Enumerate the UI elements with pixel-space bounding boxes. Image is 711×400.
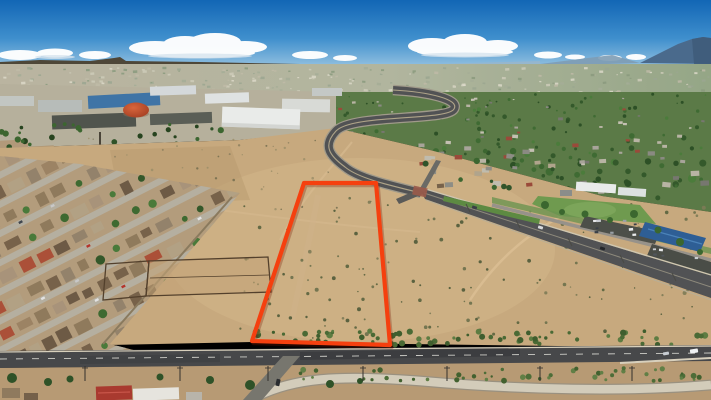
scatter-dot [538, 102, 540, 104]
scatter-dot [579, 123, 582, 126]
scatter-rect [618, 121, 623, 124]
scatter-dot [275, 149, 277, 151]
scatter-rect [455, 155, 462, 159]
scatter-dot [416, 342, 422, 348]
scatter-dot [548, 159, 551, 162]
scatter-dot [680, 376, 683, 379]
scatter-dot [574, 147, 577, 150]
scatter-dot [284, 147, 286, 149]
aerial-photo-stage: Aerial drone photograph of a vacant dese… [0, 0, 711, 400]
scatter-dot [371, 333, 376, 338]
scatter-dot [623, 114, 627, 118]
scatter-dot [439, 238, 443, 242]
scatter-dot [357, 291, 358, 292]
scatter-dot [622, 366, 626, 370]
scatter-dot [418, 298, 422, 302]
scatter-rect [635, 150, 640, 153]
scatter-rect [506, 137, 512, 141]
scatter-dot [456, 337, 461, 342]
scatter-dot [693, 211, 696, 214]
scatter-dot [414, 240, 418, 244]
scatter-rect [546, 106, 549, 108]
scatter-dot [610, 148, 614, 152]
scatter-dot [596, 176, 602, 182]
scatter-dot [362, 268, 364, 270]
scatter-dot [343, 114, 346, 117]
scatter-dot [538, 336, 541, 339]
scatter-dot [629, 133, 635, 139]
scatter-dot [497, 138, 500, 141]
scatter-dot [665, 211, 669, 215]
scatter-dot [592, 375, 597, 380]
scatter-dot [429, 313, 431, 315]
scatter-dot [76, 125, 82, 131]
scatter-dot [152, 132, 157, 137]
scatter-rect [661, 255, 664, 257]
scatter-dot [454, 377, 459, 382]
scatter-rect [479, 159, 486, 163]
scatter-rect [659, 249, 663, 252]
scatter-dot [348, 197, 351, 200]
scatter-dot [501, 184, 507, 190]
scatter-dot [475, 102, 477, 104]
scatter-dot [464, 301, 466, 303]
scatter-dot [407, 329, 413, 335]
scatter-dot [361, 298, 364, 301]
scatter-dot [483, 149, 488, 154]
scatter-dot [401, 301, 403, 303]
scatter-dot [302, 378, 305, 381]
scatter-dot [274, 208, 276, 210]
scatter-dot [261, 188, 263, 190]
scatter-rect [689, 127, 692, 129]
scatter-dot [346, 319, 350, 323]
scatter-dot [676, 94, 679, 97]
scatter-dot [437, 326, 439, 328]
scatter-dot [272, 331, 275, 334]
scatter-dot [479, 260, 482, 263]
scatter-rect [701, 120, 704, 122]
scatter-dot [589, 152, 591, 154]
scatter-dot [387, 204, 389, 206]
scatter-dot [661, 294, 663, 296]
scatter-dot [589, 296, 591, 298]
scatter-rect [662, 182, 671, 188]
scatter-rect [632, 233, 636, 236]
scatter-dot [232, 179, 235, 182]
scatter-dot [21, 139, 25, 143]
scatter-dot [469, 302, 472, 305]
scatter-dot [442, 146, 447, 151]
house [2, 388, 20, 398]
scatter-rect [638, 115, 641, 117]
scatter-dot [312, 337, 314, 339]
scatter-dot [660, 366, 665, 371]
scatter-rect [480, 131, 484, 133]
scatter-rect [585, 161, 590, 164]
scatter-dot [358, 330, 362, 334]
scatter-dot [624, 179, 629, 184]
scatter-dot [460, 220, 464, 224]
scatter-dot [126, 154, 127, 155]
scatter-rect [391, 111, 393, 112]
scatter-rect [634, 138, 640, 142]
scatter-dot [491, 375, 493, 377]
scatter-dot [342, 317, 345, 320]
scatter-dot [195, 137, 199, 141]
scatter-dot [182, 167, 184, 169]
scatter-dot [324, 325, 326, 327]
scatter-rect [626, 139, 630, 142]
scatter-dot [364, 274, 366, 276]
scatter-dot [456, 372, 461, 377]
scatter-dot [52, 123, 56, 127]
scatter-dot [556, 176, 559, 179]
scatter-dot [520, 374, 526, 380]
scatter-dot [501, 378, 507, 384]
scatter-dot [465, 217, 467, 219]
scatter-dot [476, 138, 481, 143]
scatter-dot [568, 331, 571, 334]
scatter-dot [176, 145, 178, 147]
scatter-dot [498, 146, 501, 149]
scatter-dot [377, 367, 382, 372]
scatter-dot [263, 186, 264, 187]
scatter-dot [277, 173, 278, 174]
scatter-dot [218, 127, 224, 133]
scatter-dot [337, 255, 339, 257]
scatter-dot [349, 96, 350, 97]
scatter-dot [566, 119, 570, 123]
scatter-dot [426, 378, 430, 382]
scatter-dot [371, 285, 374, 288]
scatter-dot [215, 177, 217, 179]
scatter-dot [613, 160, 619, 166]
scatter-dot [614, 369, 618, 373]
warehouse [0, 96, 34, 106]
scatter-dot [506, 185, 512, 191]
scatter-rect [437, 183, 444, 188]
scatter-dot [412, 280, 415, 283]
scatter-dot [308, 250, 312, 254]
scatter-dot [681, 372, 683, 374]
scatter-rect [512, 135, 518, 139]
scatter-dot [151, 169, 154, 172]
scatter-dot [399, 340, 405, 346]
scatter-dot [336, 207, 338, 209]
scatter-rect [677, 135, 682, 138]
scatter-dot [619, 106, 623, 110]
scatter-rect [592, 146, 598, 150]
scatter-dot [590, 96, 593, 99]
scatter-dot [475, 114, 478, 117]
scatter-dot [273, 146, 274, 147]
scatter-dot [620, 335, 625, 340]
scatter-dot [536, 282, 538, 284]
scatter-dot [569, 156, 573, 160]
scatter-dot [659, 163, 664, 168]
scatter-dot [412, 378, 415, 381]
scatter-dot [307, 279, 309, 281]
scatter-dot [328, 298, 331, 301]
scatter-rect [660, 157, 664, 160]
scatter-dot [415, 238, 417, 240]
scatter-dot [527, 259, 531, 263]
scatter-dot [705, 94, 707, 96]
scatter-dot [477, 127, 481, 131]
scatter-dot [651, 93, 654, 96]
scatter-rect [622, 98, 624, 99]
scatter-dot [433, 218, 436, 221]
scatter-dot [503, 336, 507, 340]
scatter-dot [645, 158, 651, 164]
scatter-dot [375, 129, 379, 133]
scatter-rect [526, 182, 533, 186]
scatter-dot [610, 373, 614, 377]
scatter-dot [510, 124, 513, 127]
scatter-dot [476, 121, 480, 125]
scatter-dot [242, 154, 243, 155]
scatter-dot [239, 328, 241, 330]
scatter-dot [517, 321, 520, 324]
scatter-dot [654, 368, 657, 371]
scatter-dot [384, 376, 388, 380]
scatter-dot [526, 374, 532, 380]
scatter-dot [359, 335, 365, 341]
scatter-dot [370, 378, 373, 381]
scatter-dot [690, 146, 694, 150]
scatter-dot [338, 217, 340, 219]
scatter-rect [474, 171, 482, 176]
scatter-dot [445, 341, 450, 346]
scatter-dot [593, 115, 596, 118]
scatter-dot [673, 161, 678, 166]
scatter-dot [479, 334, 485, 340]
scatter-dot [426, 336, 430, 340]
scatter-dot [492, 185, 497, 190]
scatter-dot [428, 340, 434, 346]
scatter-dot [580, 100, 583, 103]
scatter-dot [625, 169, 631, 175]
scatter-dot [490, 180, 493, 183]
scatter-dot [331, 330, 334, 333]
scatter-dot [456, 224, 460, 228]
scatter-dot [388, 261, 390, 263]
scatter-dot [486, 268, 489, 271]
scatter-dot [489, 237, 492, 240]
scatter-dot [484, 372, 487, 375]
scatter-dot [679, 153, 682, 156]
scatter-dot [243, 205, 245, 207]
scatter-dot [551, 153, 556, 158]
scatter-dot [640, 336, 643, 339]
scatter-dot [654, 336, 659, 341]
scatter-dot [289, 316, 292, 319]
scatter-dot [665, 116, 668, 119]
scatter-rect [700, 180, 709, 185]
scatter-dot [332, 276, 336, 280]
scatter-dot [376, 283, 378, 285]
scatter-rect [464, 146, 471, 150]
scatter-dot [662, 134, 665, 137]
scatter-dot [534, 93, 537, 96]
scatter-dot [346, 265, 350, 269]
scatter-dot [323, 318, 326, 321]
scatter-dot [399, 379, 402, 382]
scatter-rect [648, 151, 655, 155]
scatter-dot [563, 283, 567, 287]
scatter-dot [539, 279, 541, 281]
scatter-dot [229, 153, 231, 155]
warehouse [38, 100, 82, 112]
scatter-dot [629, 145, 635, 151]
scatter-dot [532, 167, 537, 172]
scatter-dot [532, 140, 535, 143]
small-building [186, 392, 202, 400]
scatter-dot [700, 147, 703, 150]
scatter-dot [661, 313, 663, 315]
scatter-dot [592, 153, 597, 158]
scatter-dot [458, 177, 463, 182]
scatter-rect [352, 101, 356, 103]
scatter-dot [315, 288, 319, 292]
scatter-rect [622, 108, 625, 110]
scatter-dot [258, 226, 262, 230]
scatter-dot [498, 337, 503, 342]
scatter-dot [699, 160, 706, 167]
scatter-rect [619, 152, 622, 154]
scatter-dot [311, 177, 314, 180]
scatter-rect [430, 156, 435, 159]
scatter-dot [320, 276, 322, 278]
scatter-dot [584, 97, 587, 100]
scatter-dot [449, 287, 451, 289]
scatter-dot [583, 232, 585, 234]
scatter-dot [363, 132, 366, 135]
scatter-dot [485, 113, 488, 116]
scatter-rect [595, 231, 599, 233]
scatter-dot [695, 125, 699, 129]
scatter-dot [462, 377, 465, 380]
parking-lot [150, 112, 212, 125]
warehouse [312, 88, 342, 96]
scatter-dot [539, 164, 544, 169]
scatter-dot [545, 321, 548, 324]
scatter-dot [201, 149, 202, 150]
scatter-dot [550, 331, 553, 334]
scatter-dot [302, 331, 308, 337]
warehouse [150, 85, 196, 96]
scatter-dot [508, 98, 511, 101]
scatter-dot [485, 378, 488, 381]
scatter-dot [336, 107, 338, 109]
scatter-dot [472, 374, 476, 378]
scatter-dot [367, 329, 372, 334]
scatter-dot [354, 232, 358, 236]
scatter-rect [377, 101, 379, 102]
scatter-dot [496, 101, 498, 103]
scatter-rect [593, 220, 597, 222]
scatter-dot [476, 329, 482, 335]
scatter-dot [364, 318, 366, 320]
scatter-dot [575, 337, 579, 341]
mountain-shade [692, 37, 711, 64]
scatter-dot [563, 111, 566, 114]
scatter-dot [305, 316, 307, 318]
scatter-dot [300, 259, 303, 262]
scatter-dot [643, 329, 647, 333]
scatter-dot [423, 161, 429, 167]
scatter-dot [571, 104, 575, 108]
scatter-rect [596, 227, 599, 229]
scatter-dot [547, 376, 550, 379]
scatter-dot [492, 114, 495, 117]
scatter-dot [3, 131, 9, 137]
scatter-rect [466, 105, 470, 108]
white-roof-building [133, 387, 179, 400]
scatter-dot [464, 153, 467, 156]
scatter-dot [658, 378, 662, 382]
scatter-dot [466, 319, 470, 323]
scatter-dot [168, 123, 171, 126]
scatter-rect [653, 248, 656, 250]
scatter-dot [72, 123, 75, 126]
scatter-dot [427, 219, 429, 221]
scatter-dot [359, 268, 360, 269]
scatter-dot [576, 294, 578, 296]
scatter-dot [395, 240, 398, 243]
scatter-dot [288, 142, 290, 144]
scatter-dot [325, 331, 329, 335]
scatter-dot [416, 336, 421, 341]
scatter-rect [653, 253, 657, 255]
scatter-dot [166, 127, 171, 132]
scatter-dot [683, 317, 685, 319]
scatter-dot [402, 102, 404, 104]
scatter-dot [696, 214, 699, 217]
scatter-dot [306, 292, 309, 295]
scatter-dot [354, 326, 357, 329]
scatter-dot [501, 368, 504, 371]
scatter-dot [232, 139, 234, 141]
scatter-dot [311, 376, 314, 379]
scatter-dot [489, 335, 494, 340]
scatter-rect [445, 141, 451, 145]
scatter-dot [518, 118, 521, 121]
scatter-dot [602, 289, 605, 292]
scatter-rect [634, 223, 637, 225]
scatter-rect [691, 171, 700, 177]
scatter-dot [565, 131, 567, 133]
scatter-dot [510, 148, 516, 154]
scatter-rect [629, 228, 634, 231]
scatter-dot [473, 109, 476, 112]
scatter-dot [574, 172, 580, 178]
scatter-dot [641, 342, 645, 346]
scatter-dot [633, 106, 637, 110]
warehouse [205, 92, 249, 104]
scatter-dot [317, 330, 321, 334]
scatter-dot [544, 336, 547, 339]
scatter-dot [520, 158, 524, 162]
scatter-dot [604, 378, 607, 381]
scatter-dot [697, 375, 702, 380]
scatter-dot [290, 276, 293, 279]
scatter-rect [474, 98, 477, 100]
scatter-dot [552, 126, 556, 130]
scatter-rect [596, 219, 600, 222]
scatter-dot [428, 326, 431, 329]
